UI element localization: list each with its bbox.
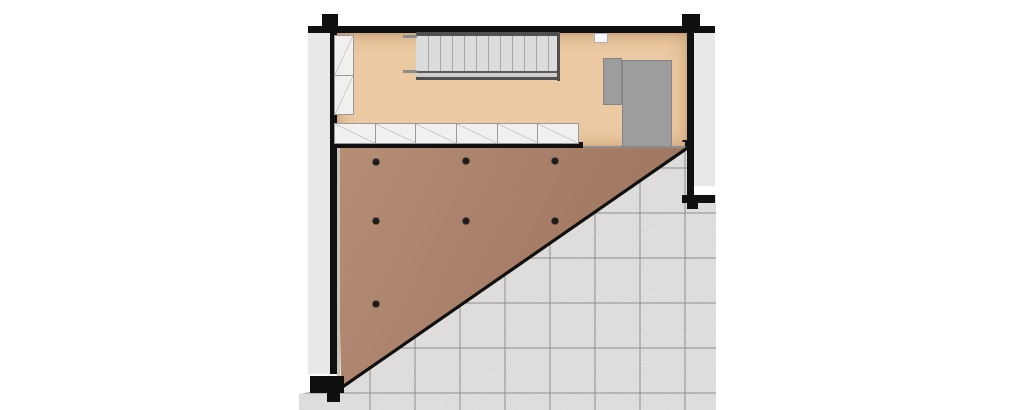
cabinet-diagonal-down-icon bbox=[335, 124, 375, 143]
cabinet-cell bbox=[457, 124, 497, 143]
stair-tread-line bbox=[536, 36, 537, 71]
stair-bottom-stringer-3 bbox=[416, 77, 560, 80]
column-top-left bbox=[322, 14, 338, 27]
wall-stub-bottom-left bbox=[327, 393, 340, 402]
cabinet-cell bbox=[416, 124, 456, 143]
stair-right-edge bbox=[557, 32, 560, 81]
floor-plan-canvas bbox=[0, 0, 1024, 410]
column-top-right bbox=[682, 14, 700, 27]
column-bottom-left bbox=[310, 376, 344, 393]
stair-tread-line bbox=[548, 36, 549, 71]
stair-treads bbox=[416, 36, 560, 71]
cabinet-cell bbox=[335, 76, 353, 115]
cabinet-diagonal-up-icon bbox=[335, 76, 353, 115]
stair-handrail-stub-top bbox=[403, 35, 417, 38]
cabinet-cell bbox=[538, 124, 578, 143]
cabinet-diagonal-down-icon bbox=[538, 124, 578, 143]
wall-niche bbox=[594, 33, 608, 43]
stair-tread-line bbox=[476, 36, 477, 71]
slope-left-edge-line bbox=[337, 148, 340, 382]
wardrobe-large bbox=[622, 60, 672, 147]
exterior-wall-band-right bbox=[694, 33, 715, 186]
stair-tread-line bbox=[452, 36, 453, 71]
cabinet-diagonal-down-icon bbox=[498, 124, 538, 143]
cabinet-cell bbox=[376, 124, 416, 143]
stair-handrail-stub-bottom bbox=[403, 70, 417, 73]
cabinet-diagonal-up-icon bbox=[335, 36, 353, 75]
stair-tread-line bbox=[464, 36, 465, 71]
cabinet-diagonal-down-icon bbox=[457, 124, 497, 143]
stair-tread-line bbox=[488, 36, 489, 71]
cabinet-row bbox=[334, 123, 579, 144]
staircase bbox=[416, 32, 560, 81]
wall-stub-right bbox=[687, 203, 698, 209]
cabinet-cell bbox=[335, 36, 353, 75]
cabinet-cell bbox=[498, 124, 538, 143]
wall-cabinet-column bbox=[334, 35, 354, 115]
wall-right bbox=[687, 33, 694, 195]
stair-tread-line bbox=[524, 36, 525, 71]
cabinet-diagonal-down-icon bbox=[376, 124, 416, 143]
under-slope-area bbox=[337, 148, 688, 389]
cabinet-cell bbox=[335, 124, 375, 143]
cabinet-diagonal-down-icon bbox=[416, 124, 456, 143]
stair-tread-line bbox=[500, 36, 501, 71]
stair-tread-line bbox=[512, 36, 513, 71]
exterior-wall-band-left bbox=[308, 33, 330, 374]
stair-tread-line bbox=[440, 36, 441, 71]
wardrobe-small bbox=[603, 58, 622, 105]
wall-end-cap-right bbox=[682, 195, 715, 203]
stair-tread-line bbox=[428, 36, 429, 71]
